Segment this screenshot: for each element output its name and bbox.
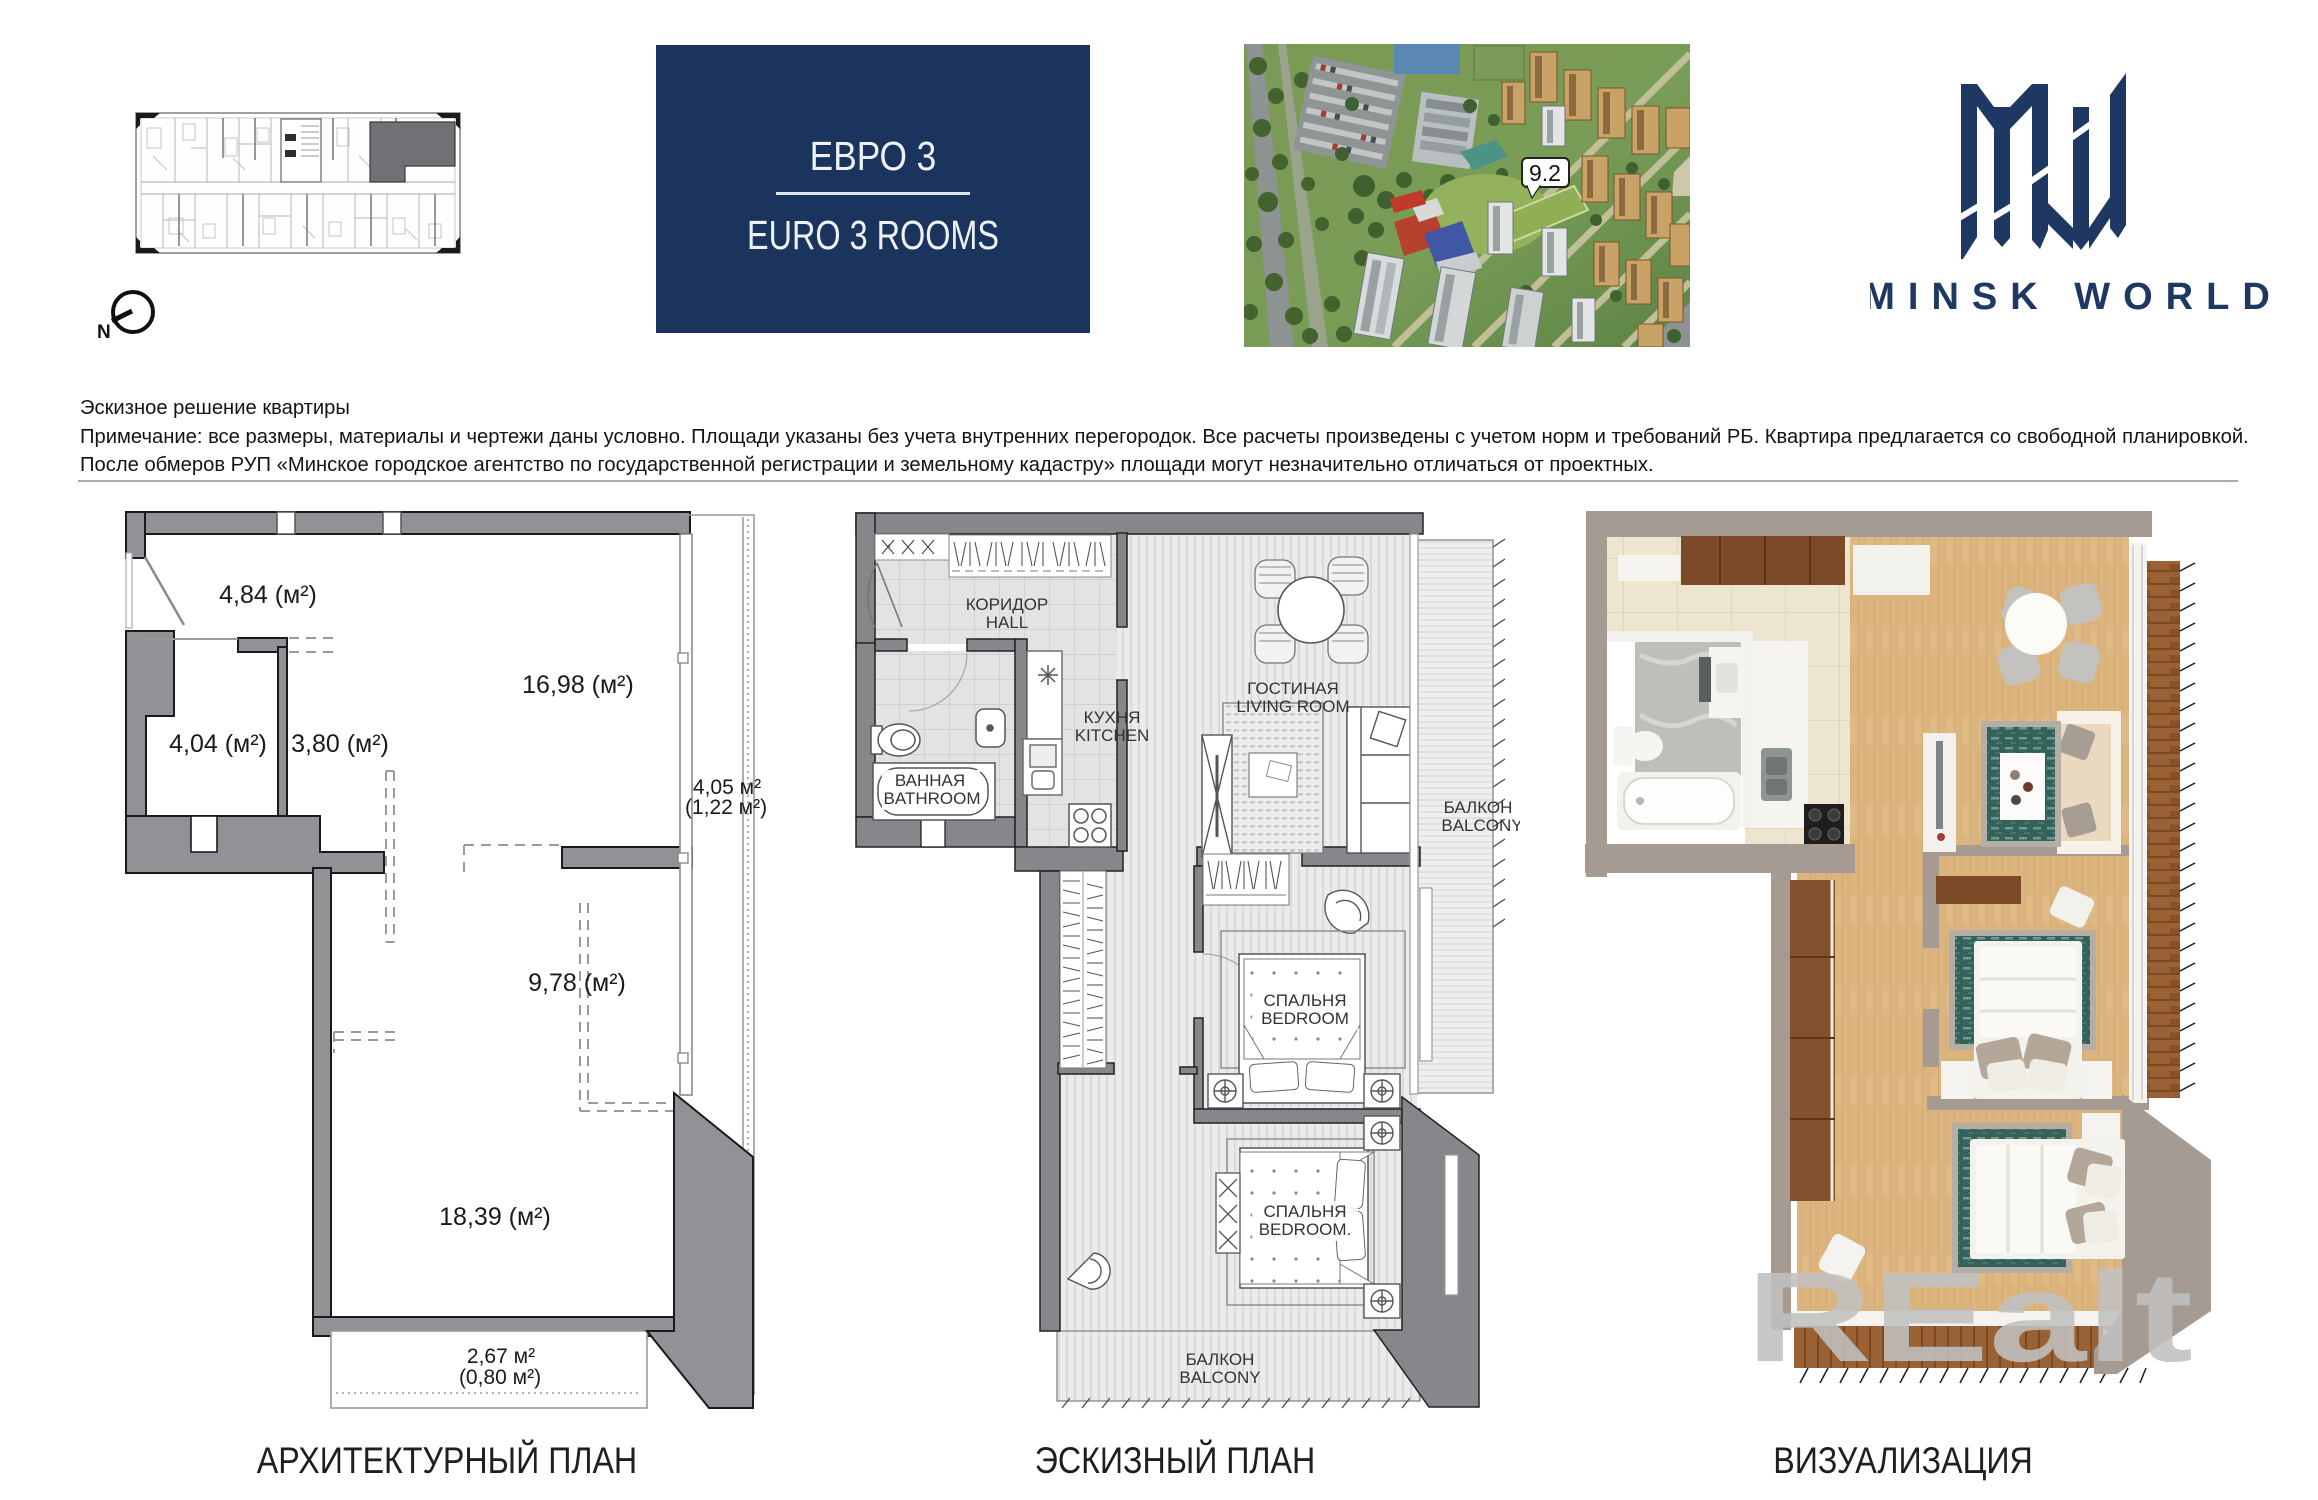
svg-text:КОРИДОР: КОРИДОР [966,595,1049,614]
svg-text:ГОСТИНАЯ: ГОСТИНАЯ [1247,679,1339,698]
svg-text:BATHROOM: BATHROOM [884,789,981,808]
svg-text:HALL: HALL [986,613,1029,632]
svg-text:(0,80 м²): (0,80 м²) [459,1366,541,1389]
svg-text:3,80 (м²): 3,80 (м²) [291,730,389,758]
svg-text:ВАННАЯ: ВАННАЯ [895,771,965,790]
svg-text:KITCHEN: KITCHEN [1075,726,1150,745]
svg-text:N: N [97,322,111,343]
svg-text:СПАЛЬНЯ: СПАЛЬНЯ [1263,991,1346,1010]
svg-text:СПАЛЬНЯ: СПАЛЬНЯ [1263,1202,1346,1221]
svg-text:2,67 м²: 2,67 м² [467,1345,535,1368]
svg-text:18,39 (м²): 18,39 (м²) [439,1203,551,1231]
svg-text:BALCONY: BALCONY [1441,816,1520,835]
svg-text:4,84 (м²): 4,84 (м²) [219,581,317,609]
svg-text:BALCONY: BALCONY [1179,1368,1260,1387]
svg-text:REalt: REalt [1746,1246,2193,1389]
svg-text:LIVING ROOM: LIVING ROOM [1236,697,1349,716]
svg-text:БАЛКОН: БАЛКОН [1186,1350,1255,1369]
svg-text:КУХНЯ: КУХНЯ [1084,708,1141,727]
svg-text:9.2: 9.2 [1529,160,1561,186]
svg-text:16,98 (м²): 16,98 (м²) [522,671,634,699]
svg-text:(1,22 м²): (1,22 м²) [685,796,767,819]
svg-text:MINSK WORLD: MINSK WORLD [1870,276,2283,318]
svg-text:BEDROOM.: BEDROOM. [1259,1220,1352,1239]
svg-text:BEDROOM: BEDROOM [1261,1009,1349,1028]
svg-text:4,04 (м²): 4,04 (м²) [169,730,267,758]
svg-text:9,78 (м²): 9,78 (м²) [528,969,626,997]
svg-text:БАЛКОН: БАЛКОН [1444,798,1513,817]
